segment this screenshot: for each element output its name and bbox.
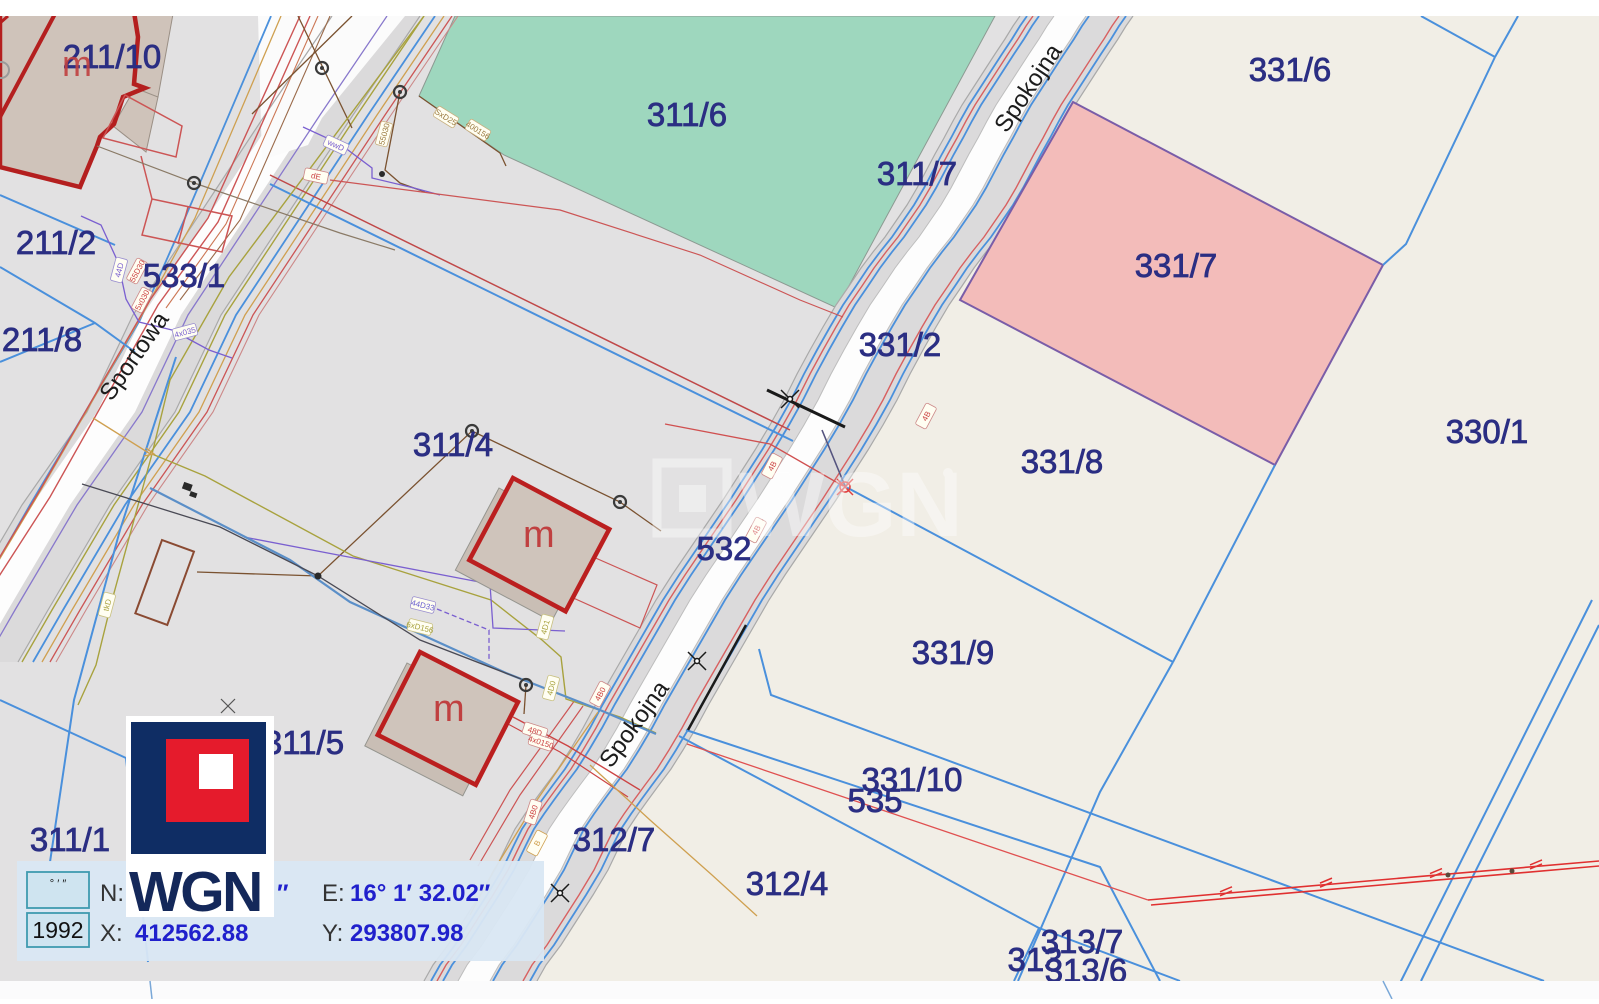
svg-text:WGN: WGN xyxy=(738,454,963,556)
svg-text:m: m xyxy=(62,43,92,84)
svg-text:311/7: 311/7 xyxy=(877,155,957,192)
svg-text:331/7: 331/7 xyxy=(1135,247,1218,284)
svg-text:E:: E: xyxy=(322,880,345,907)
svg-text:293807.98: 293807.98 xyxy=(350,920,463,947)
svg-text:° ′ ″: ° ′ ″ xyxy=(50,878,67,890)
svg-text:Y:: Y: xyxy=(322,920,343,947)
svg-text:532: 532 xyxy=(696,530,751,567)
svg-text:533/1: 533/1 xyxy=(143,257,226,294)
svg-text:331/2: 331/2 xyxy=(859,326,942,363)
svg-text:331/8: 331/8 xyxy=(1021,443,1104,480)
svg-text:311/1: 311/1 xyxy=(30,821,110,858)
svg-text:m: m xyxy=(433,688,465,730)
svg-text:311/5: 311/5 xyxy=(264,724,344,761)
svg-text:330/1: 330/1 xyxy=(1446,413,1529,450)
svg-text:331/9: 331/9 xyxy=(912,634,995,671)
svg-text:1992: 1992 xyxy=(32,917,83,943)
svg-text:211/8: 211/8 xyxy=(2,321,82,358)
svg-text:m: m xyxy=(523,514,555,556)
svg-text:412562.88: 412562.88 xyxy=(135,920,248,947)
svg-text:16° 1′ 32.02″: 16° 1′ 32.02″ xyxy=(350,880,491,907)
svg-text:331/6: 331/6 xyxy=(1249,51,1332,88)
svg-text:311/4: 311/4 xyxy=(413,426,493,463)
svg-text:312/4: 312/4 xyxy=(746,865,829,902)
svg-text:X:: X: xyxy=(100,920,123,947)
svg-text:311/6: 311/6 xyxy=(647,96,727,133)
svg-text:N:: N: xyxy=(100,880,124,907)
svg-text:211/2: 211/2 xyxy=(16,224,96,261)
svg-text:535: 535 xyxy=(847,782,902,819)
svg-text:″: ″ xyxy=(277,880,289,907)
svg-text:WGN: WGN xyxy=(129,860,261,924)
svg-text:312/7: 312/7 xyxy=(573,821,656,858)
